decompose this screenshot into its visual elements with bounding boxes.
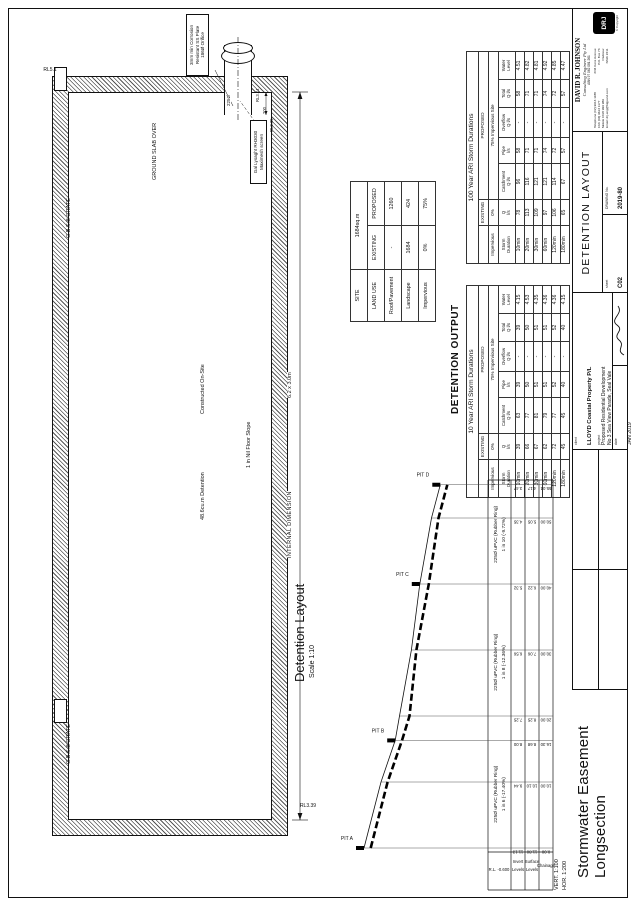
orifice-note-line1: 3mm min Corrosion	[189, 17, 195, 73]
screen-note-line1: Gal Lysaght RH3030	[253, 123, 259, 181]
internal-dim-label: INTERNAL DIMENSION	[287, 491, 293, 558]
screen-notebox: Gal Lysaght RH3030 Maximesh screen	[250, 120, 267, 184]
internal-dim-value: 6.2 x 3.0m	[287, 372, 293, 398]
drawing-sheet: G.B.S.B GRATE G.B.S.B GRATE GROUND SLAB …	[0, 0, 636, 906]
orifice-notebox: 3mm min Corrosion Resistant SS Plate 186…	[186, 14, 209, 76]
plan-linework	[0, 0, 636, 906]
screen-note-line2: Maximesh screen	[259, 123, 265, 181]
pipe-diameter-label: 225Ø	[226, 95, 231, 106]
drawing-page: G.B.S.B GRATE G.B.S.B GRATE GROUND SLAB …	[0, 0, 636, 906]
orifice-note-line3: 186Ø Orifice	[200, 17, 206, 73]
